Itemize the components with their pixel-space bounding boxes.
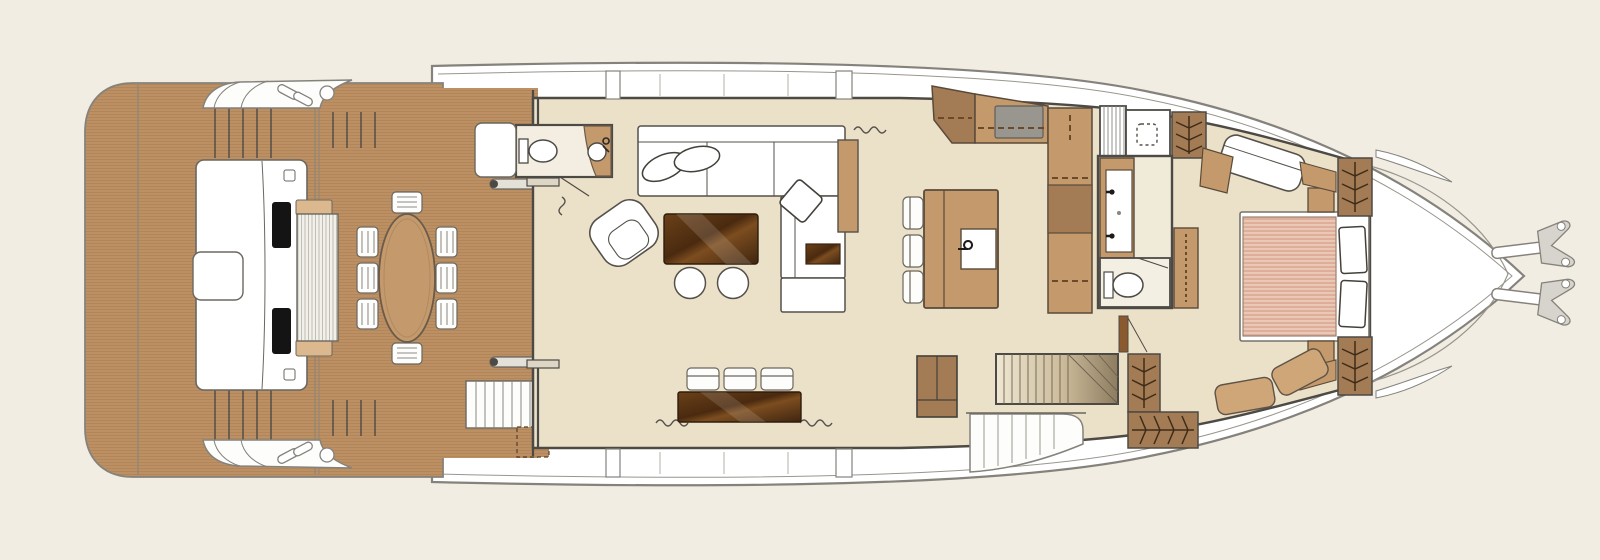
slatted-bench	[297, 214, 338, 341]
pillow	[1339, 280, 1367, 327]
toilet-tank	[1104, 272, 1113, 298]
floorplan-canvas	[0, 0, 1600, 560]
dining-chair	[357, 299, 378, 329]
transom-hatch	[193, 252, 243, 300]
day-head-basin	[588, 143, 606, 161]
speaker-bottom	[272, 308, 291, 354]
wardrobe-starboard	[1172, 112, 1206, 158]
toilet-icon	[1113, 273, 1143, 297]
dining-chair	[392, 343, 422, 364]
dining-chair	[436, 299, 457, 329]
mattress	[1243, 217, 1336, 336]
tall-cabinet	[917, 356, 957, 417]
ottoman	[675, 268, 706, 299]
coffee-table	[664, 214, 758, 264]
ottoman	[718, 268, 749, 299]
dining-chair	[392, 192, 422, 213]
dining-chair	[357, 227, 378, 257]
yacht-floorplan	[0, 0, 1600, 560]
stairs-up	[1100, 106, 1126, 158]
dining-chair	[357, 263, 378, 293]
stairs-down	[996, 354, 1118, 404]
fairlead-icon	[320, 448, 334, 462]
seat-pad-top	[296, 200, 332, 215]
side-table	[806, 244, 840, 264]
salon-stool	[687, 368, 793, 390]
fairlead-icon	[320, 86, 334, 100]
salon-galley-column	[838, 140, 858, 232]
toilet-room	[1100, 258, 1170, 307]
vanity-desk	[1174, 228, 1198, 308]
sideboard-group	[678, 368, 801, 422]
cockpit-seat	[475, 123, 516, 177]
toilet-icon	[529, 140, 557, 162]
dining-chair	[436, 263, 457, 293]
bed	[1240, 212, 1369, 341]
latch-top	[284, 170, 295, 181]
dining-table	[379, 214, 435, 342]
seat-pad-bottom	[296, 340, 332, 356]
latch-bottom	[284, 369, 295, 380]
nightstand	[1308, 188, 1334, 212]
cooktop	[995, 106, 1043, 138]
toilet-tank	[519, 139, 528, 163]
pillow	[1339, 226, 1367, 273]
master-bathroom	[1098, 156, 1172, 308]
galley-island	[903, 190, 998, 308]
galley-stool	[903, 197, 923, 303]
counter-column-mid	[1048, 185, 1092, 233]
dining-chair	[436, 227, 457, 257]
speaker-top	[272, 202, 291, 248]
